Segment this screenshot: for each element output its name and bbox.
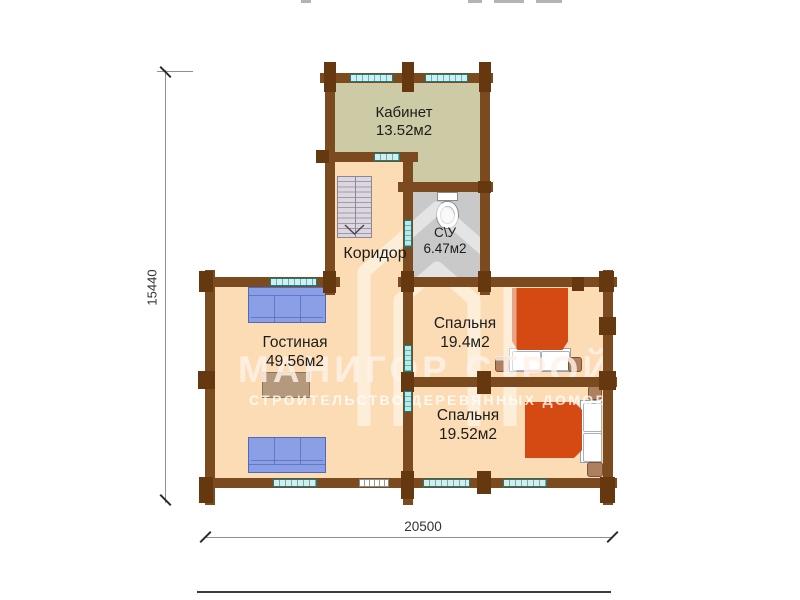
log-end	[477, 471, 491, 494]
log-end	[199, 477, 213, 503]
door-bedroom2	[404, 391, 412, 412]
room-name: С\У	[408, 225, 482, 241]
bed2-pillow-bottom	[583, 433, 602, 462]
window	[425, 74, 468, 82]
log-end	[402, 62, 414, 92]
room-area: 13.52м2	[348, 122, 460, 140]
sofa-top	[248, 287, 326, 323]
room-area: 19.4м2	[410, 334, 520, 353]
log-end	[316, 150, 329, 163]
window	[359, 479, 389, 487]
cropped-text-fragment	[536, 0, 562, 3]
room-label-spalnya1: Спальня 19.4м2	[410, 315, 520, 353]
window	[374, 153, 400, 161]
log-end	[478, 181, 491, 193]
room-name: Гостиная	[240, 334, 350, 353]
room-name: Спальня	[412, 407, 524, 426]
bottom-rule	[197, 591, 611, 593]
room-label-gostinaya: Гостиная 49.56м2	[240, 334, 350, 372]
dimension-height-label: 15440	[145, 257, 160, 319]
log-end	[600, 477, 615, 503]
wall	[398, 277, 617, 287]
log-end	[199, 271, 213, 292]
log-end	[477, 371, 491, 394]
room-label-koridor: Коридор	[332, 244, 418, 264]
log-end	[323, 271, 336, 293]
window	[350, 74, 393, 82]
window	[270, 278, 317, 286]
cropped-text-fragment	[494, 0, 524, 3]
log-end	[599, 317, 616, 335]
room-name: Коридор	[332, 244, 418, 264]
cropped-text-fragment	[468, 0, 482, 3]
room-area: 49.56м2	[240, 353, 350, 372]
floor-plan-canvas: МАНИГОР СТРОЙ СТРОИТЕЛЬСТВО ДЕРЕВЯННЫХ Д…	[0, 0, 800, 600]
room-area: 19.52м2	[412, 426, 524, 445]
room-name: Кабинет	[348, 104, 460, 122]
log-end	[572, 277, 584, 291]
dimension-line-vertical	[165, 70, 166, 503]
bed2-nightstand-bottom	[587, 462, 603, 477]
log-end	[599, 271, 614, 292]
room-label-spalnya2: Спальня 19.52м2	[412, 407, 524, 445]
cropped-text-fragment	[301, 0, 311, 3]
bed2-blanket	[525, 402, 582, 458]
room-label-kabinet: Кабинет 13.52м2	[348, 104, 460, 141]
watermark-tagline: СТРОИТЕЛЬСТВО ДЕРЕВЯННЫХ ДОМОВ	[249, 392, 608, 408]
room-name: Спальня	[410, 315, 520, 334]
log-end	[324, 62, 336, 92]
wall	[480, 62, 490, 295]
dimension-width-label: 20500	[385, 519, 461, 534]
wall	[403, 377, 617, 387]
room-area: 6.47м2	[408, 241, 482, 257]
log-end	[401, 471, 414, 499]
dimension-line-horizontal	[205, 537, 612, 538]
room-label-su: С\У 6.47м2	[408, 225, 482, 258]
window	[503, 479, 547, 487]
log-end	[479, 62, 491, 92]
log-end	[401, 372, 414, 392]
log-end	[478, 271, 491, 292]
sofa-bottom	[248, 437, 326, 473]
window	[273, 479, 317, 487]
log-end	[401, 271, 414, 292]
log-end	[599, 371, 616, 390]
window	[423, 479, 470, 487]
log-end	[198, 371, 215, 389]
